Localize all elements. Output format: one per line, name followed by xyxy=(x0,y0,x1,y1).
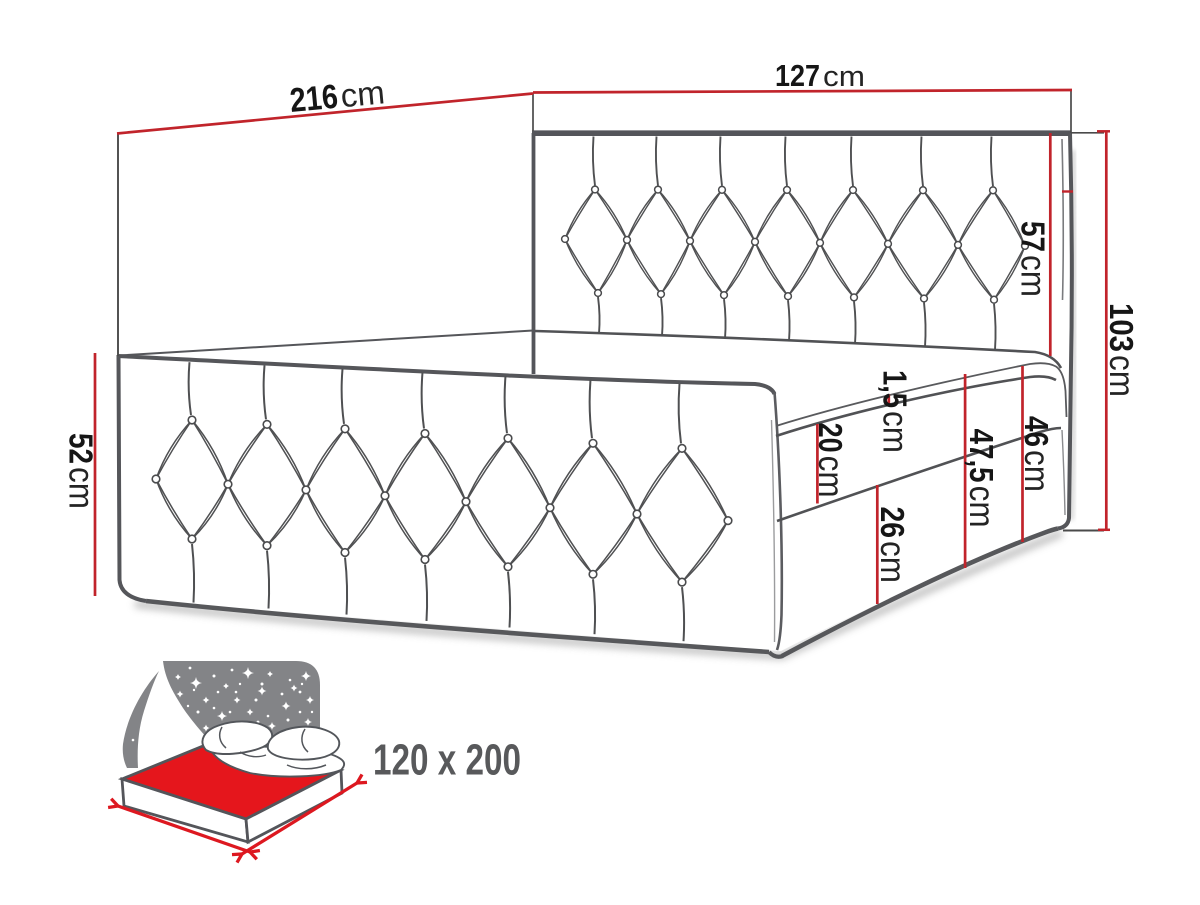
svg-text:120 x 200: 120 x 200 xyxy=(373,736,521,785)
svg-text:103: 103 xyxy=(1103,303,1140,352)
svg-text:cm: cm xyxy=(1017,450,1056,492)
svg-text:46: 46 xyxy=(1018,416,1055,447)
svg-text:26: 26 xyxy=(874,507,911,539)
svg-text:cm: cm xyxy=(873,541,912,583)
svg-text:52: 52 xyxy=(63,433,100,464)
svg-text:cm: cm xyxy=(962,486,1001,528)
svg-text:cm: cm xyxy=(876,411,915,453)
svg-text:20: 20 xyxy=(812,423,849,453)
svg-text:57: 57 xyxy=(1015,221,1052,252)
svg-text:cm: cm xyxy=(811,456,850,498)
svg-text:cm: cm xyxy=(62,467,101,509)
svg-text:cm: cm xyxy=(1102,355,1141,397)
svg-text:cm: cm xyxy=(1014,255,1053,297)
svg-text:cm: cm xyxy=(339,73,386,114)
svg-text:127: 127 xyxy=(775,58,820,93)
svg-text:47,5: 47,5 xyxy=(963,429,1000,483)
svg-text:1,5: 1,5 xyxy=(877,370,914,408)
svg-text:216: 216 xyxy=(288,78,339,120)
svg-text:cm: cm xyxy=(823,61,865,93)
